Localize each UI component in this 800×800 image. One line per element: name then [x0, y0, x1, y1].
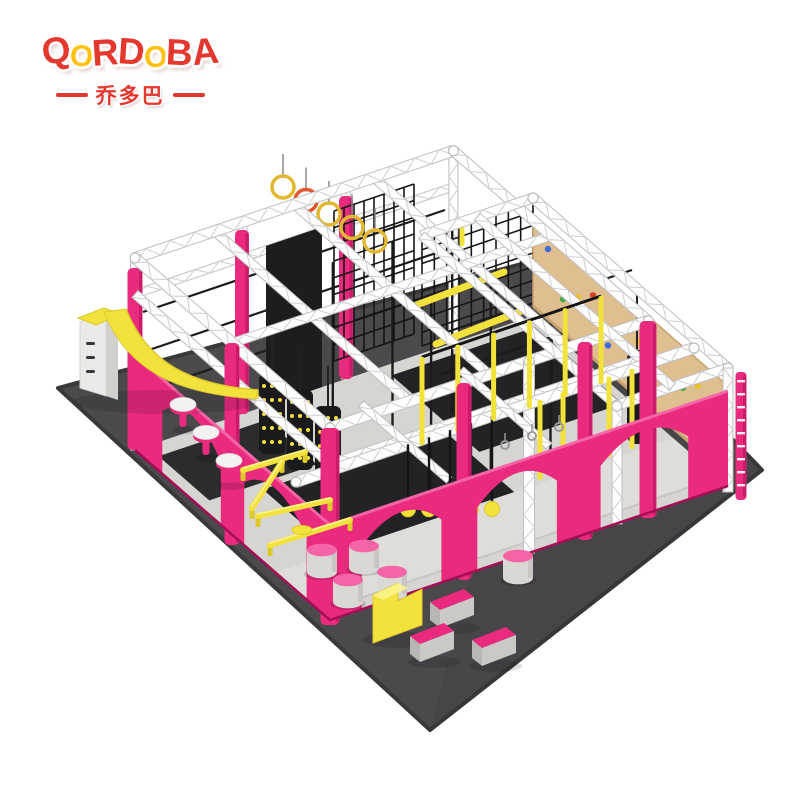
- brand-logo: Q O R D O B A 乔多巴: [30, 34, 230, 110]
- brand-wordmark: Q O R D O B A: [30, 34, 230, 71]
- product-photo: Q O R D O B A 乔多巴: [0, 0, 800, 800]
- logo-divider-right: [173, 93, 205, 97]
- logo-letter: O: [143, 42, 168, 74]
- scene-illustration: [0, 0, 800, 800]
- logo-letter: Q: [40, 30, 73, 71]
- brand-subtitle: 乔多巴: [30, 80, 230, 110]
- floor-disc: [292, 526, 312, 535]
- stepping-cylinder: [304, 544, 340, 580]
- logo-divider-left: [56, 93, 88, 97]
- stepping-cylinder: [346, 540, 382, 576]
- pink-padded-column: [736, 372, 747, 500]
- logo-letter: R: [91, 33, 119, 72]
- brand-cjk-name: 乔多巴: [96, 80, 165, 110]
- logo-letter: A: [190, 32, 219, 71]
- stepping-cylinder: [330, 574, 366, 610]
- logo-letter: O: [69, 41, 94, 73]
- logo-letter: D: [117, 32, 145, 71]
- stepping-cylinder: [500, 550, 536, 586]
- logo-letter: B: [165, 33, 193, 71]
- truss-beam: [612, 406, 622, 524]
